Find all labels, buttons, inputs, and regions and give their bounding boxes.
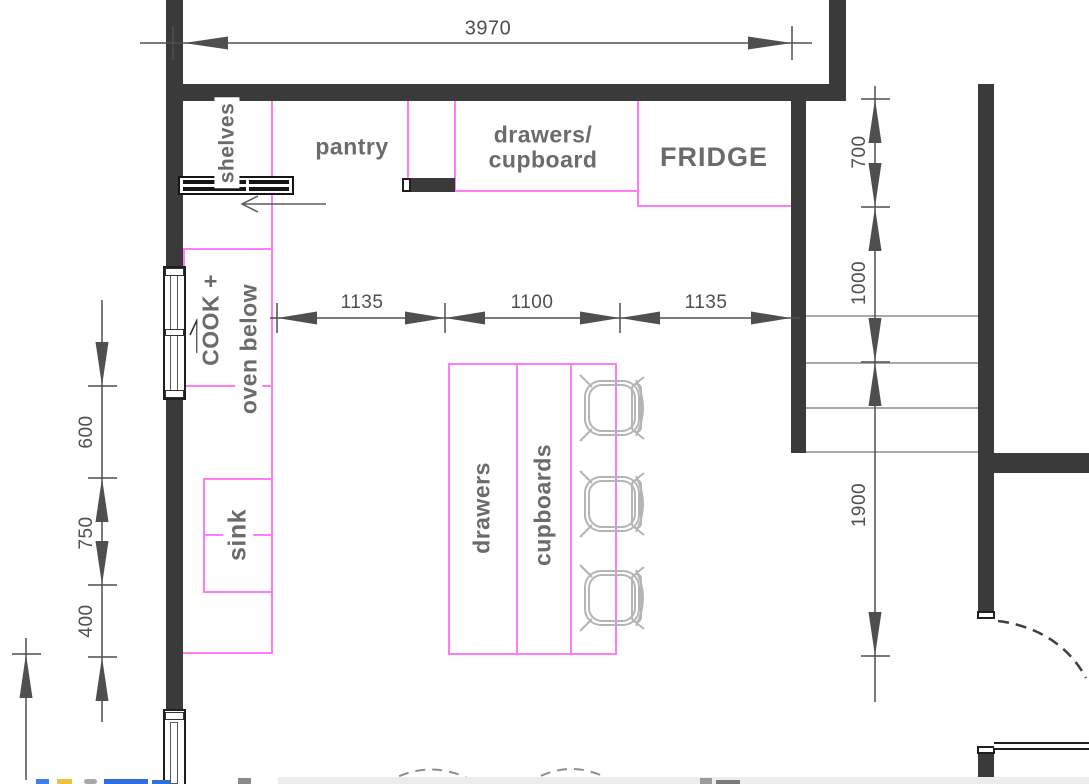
bottom-ui-fragment-text	[716, 780, 740, 784]
bottom-ui-fragment-icon-1	[238, 778, 251, 784]
label-fridge: FRIDGE	[655, 142, 773, 174]
floor-plan-canvas: 3970 1135 1100 1135 700 1000 1900 600 75…	[0, 0, 1089, 784]
stool-2	[580, 471, 644, 537]
dim-mid-3: 1135	[685, 292, 728, 314]
linework-layer	[0, 0, 1089, 784]
bottom-ui-fragment-yellow	[57, 779, 72, 784]
shelves-slide-arrow	[242, 196, 326, 212]
dimension-left-partial	[12, 638, 41, 780]
bottom-ui-strip	[278, 777, 1089, 784]
dim-left-600: 600	[76, 415, 98, 448]
bottom-ui-fragment-icon-2	[700, 778, 712, 784]
label-upper-cabinet-line1: drawers/	[489, 123, 598, 148]
label-upper-cabinet-line2: cupboard	[489, 148, 598, 173]
bottom-ui-fragment-gray	[84, 779, 97, 784]
stool-1	[580, 375, 644, 441]
label-shelves: shelves	[214, 98, 239, 189]
bottom-ui-fragment-blue-3	[152, 780, 170, 784]
dimension-left-chain	[88, 300, 117, 722]
door-swing-arc-right	[998, 621, 1086, 678]
bar-stools	[580, 375, 644, 631]
dim-mid-1: 1135	[341, 292, 384, 314]
stair-treads	[806, 316, 978, 452]
dimension-right-chain	[861, 86, 890, 702]
label-island-drawers: drawers	[468, 457, 495, 559]
label-cook: COOK +	[197, 269, 224, 371]
stool-3	[580, 565, 644, 631]
dim-right-700: 700	[849, 135, 871, 168]
label-island-cupboards: cupboards	[529, 439, 556, 571]
label-oven-below: oven below	[235, 279, 262, 419]
dim-mid-2: 1100	[511, 292, 554, 314]
bottom-ui-fragment-blue-1	[36, 779, 49, 784]
dim-right-1000: 1000	[849, 261, 871, 305]
label-sink: sink	[223, 504, 253, 566]
bottom-ui-fragment-blue-2	[104, 779, 148, 784]
dim-top-value: 3970	[465, 18, 512, 41]
dim-left-400: 400	[76, 604, 98, 637]
dim-right-1900: 1900	[849, 483, 871, 527]
dim-left-750: 750	[76, 516, 98, 549]
label-pantry: pantry	[310, 133, 393, 160]
label-upper-cabinet: drawers/ cupboard	[484, 122, 603, 175]
